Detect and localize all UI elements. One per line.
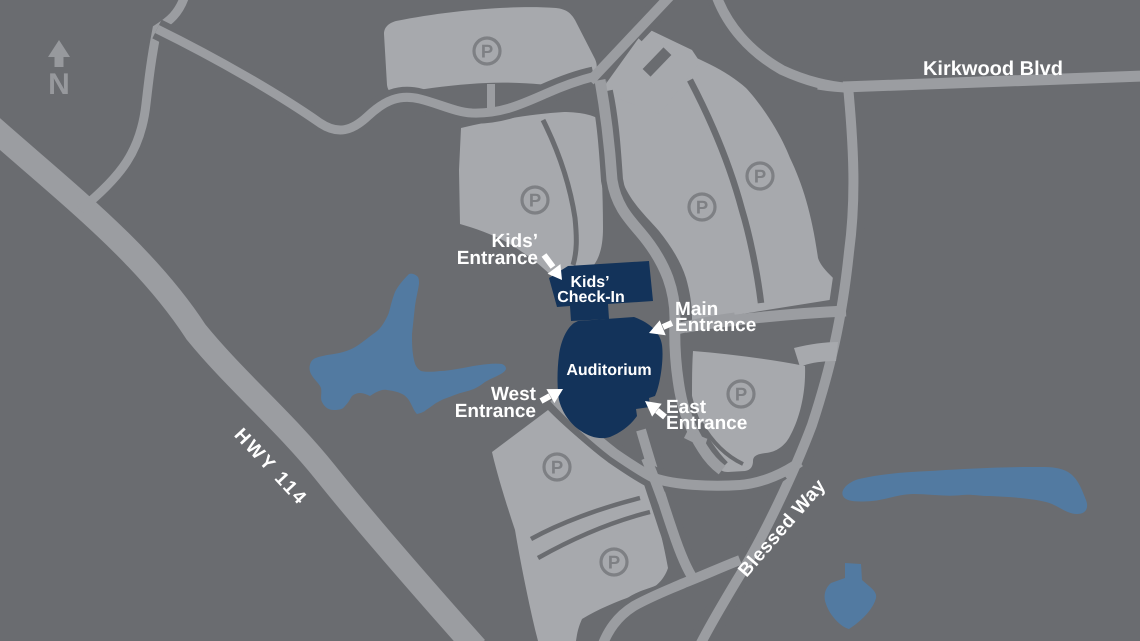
svg-text:P: P — [551, 457, 563, 478]
svg-text:Kirkwood Blvd: Kirkwood Blvd — [923, 58, 1063, 80]
svg-text:P: P — [481, 41, 493, 62]
svg-text:P: P — [735, 384, 747, 405]
svg-text:Entrance: Entrance — [675, 315, 756, 336]
svg-text:Check-In: Check-In — [557, 289, 625, 306]
svg-text:Auditorium: Auditorium — [566, 362, 651, 379]
svg-text:P: P — [754, 166, 766, 187]
svg-text:N: N — [48, 68, 70, 101]
svg-text:P: P — [696, 197, 708, 218]
svg-text:P: P — [608, 552, 620, 573]
svg-text:Entrance: Entrance — [455, 401, 536, 422]
svg-text:Entrance: Entrance — [457, 248, 538, 269]
svg-text:Entrance: Entrance — [666, 413, 747, 434]
svg-text:P: P — [529, 190, 541, 211]
